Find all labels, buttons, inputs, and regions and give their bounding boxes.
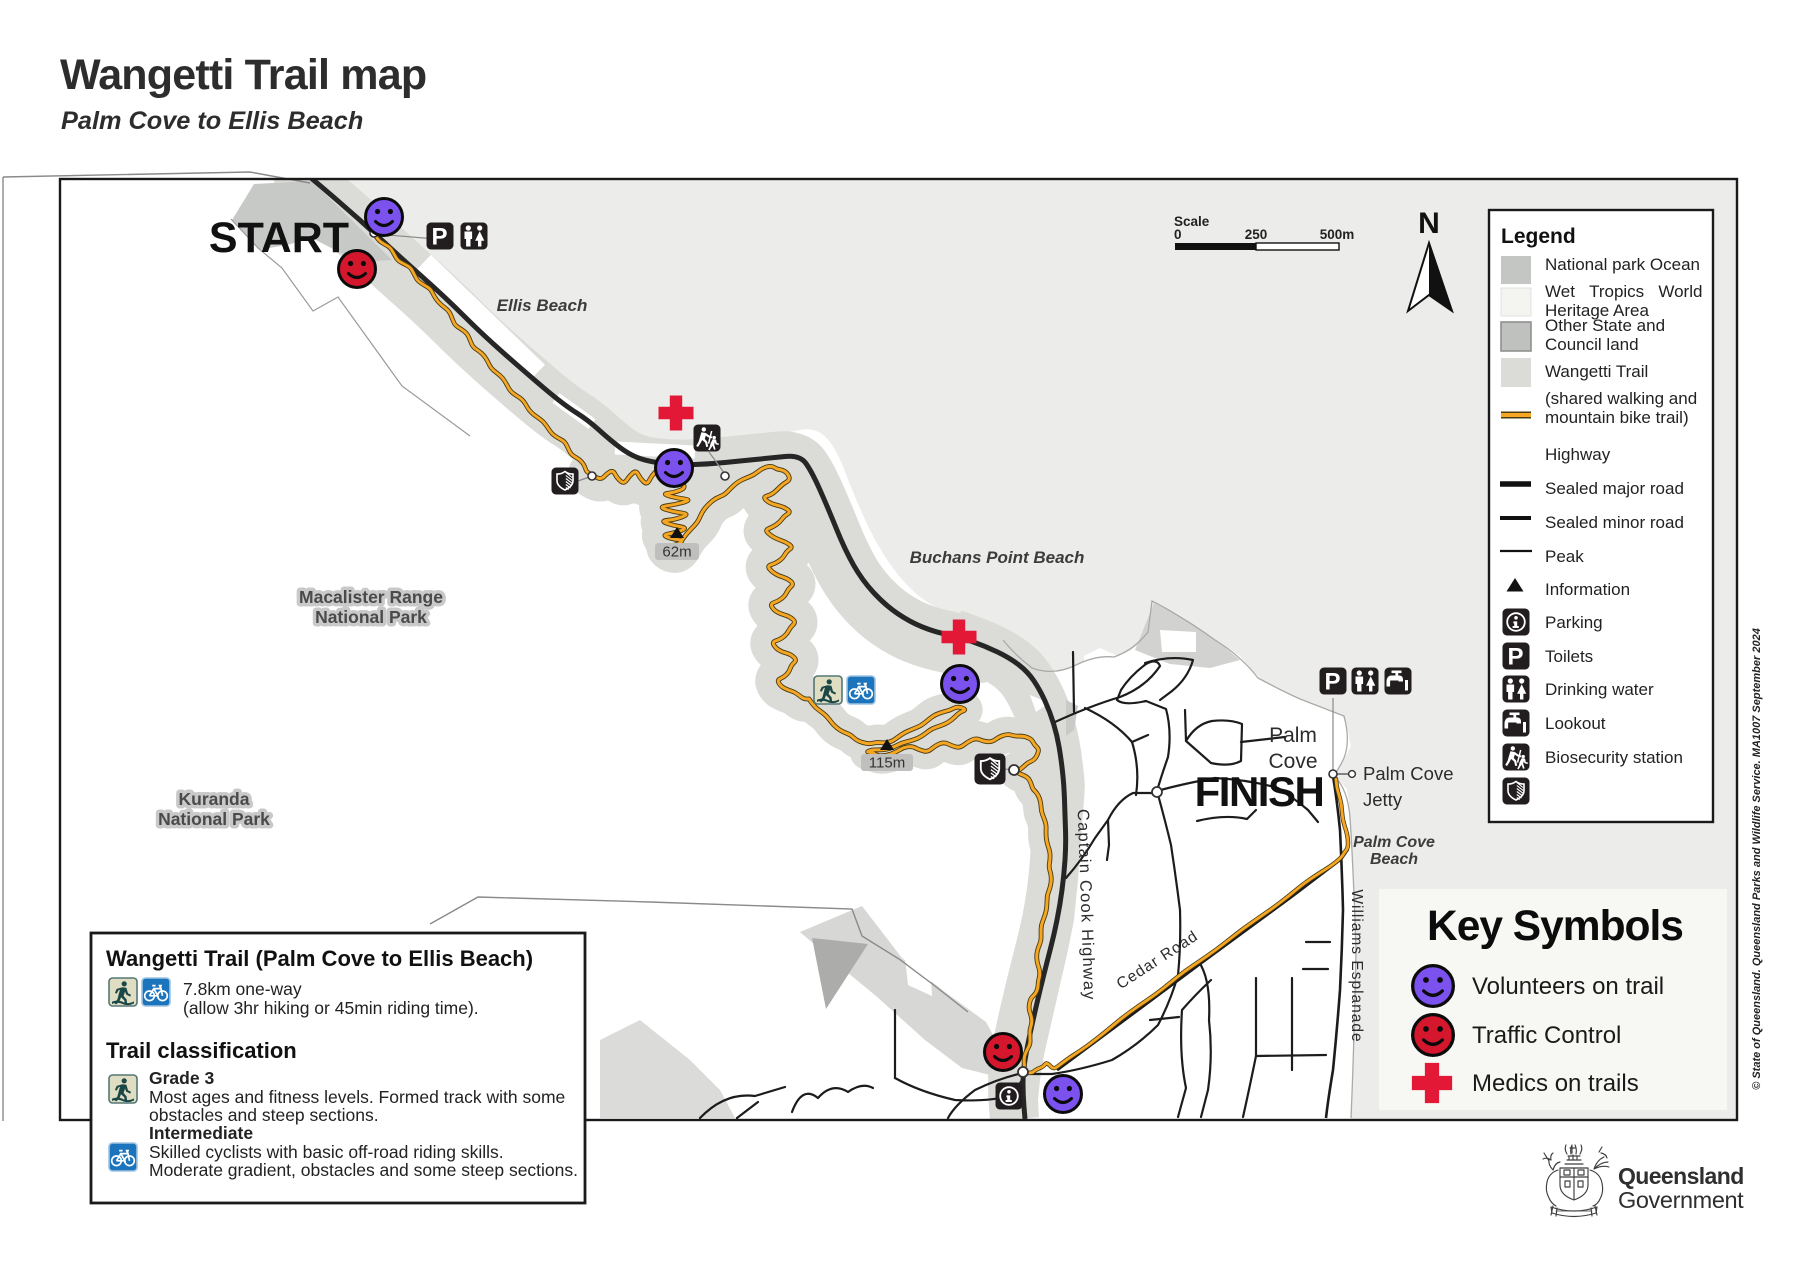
svg-text:Ellis Beach: Ellis Beach	[497, 296, 588, 315]
svg-text:Palm Cove: Palm Cove	[1353, 834, 1435, 851]
svg-text:© State of Queensland. Queensl: © State of Queensland. Queensland Parks …	[1751, 628, 1763, 1090]
svg-text:Skilled cyclists with basic of: Skilled cyclists with basic off-road rid…	[149, 1142, 504, 1162]
svg-text:(allow 3hr hiking or 45min rid: (allow 3hr hiking or 45min riding time).	[183, 998, 479, 1018]
svg-text:Wangetti Trail (Palm Cove to E: Wangetti Trail (Palm Cove to Ellis Beach…	[106, 946, 533, 971]
svg-text:Biosecurity station: Biosecurity station	[1545, 748, 1683, 767]
svg-text:Highway: Highway	[1545, 445, 1611, 464]
svg-text:Macalister Range: Macalister Range	[299, 587, 443, 607]
svg-text:Peak: Peak	[1545, 547, 1584, 566]
svg-text:Wet Tropics World: Wet Tropics World	[1545, 282, 1702, 301]
svg-text:Palm Cove to Ellis Beach: Palm Cove to Ellis Beach	[61, 107, 363, 135]
svg-text:Drinking water: Drinking water	[1545, 680, 1654, 699]
svg-text:Buchans Point Beach: Buchans Point Beach	[910, 548, 1085, 567]
svg-text:0: 0	[1174, 227, 1182, 242]
svg-text:Traffic Control: Traffic Control	[1472, 1022, 1621, 1049]
svg-text:Wangetti Trail: Wangetti Trail	[1545, 362, 1648, 381]
svg-text:Sealed major road: Sealed major road	[1545, 479, 1684, 498]
svg-text:Volunteers on trail: Volunteers on trail	[1472, 973, 1664, 1000]
svg-text:obstacles and steep sections.: obstacles and steep sections.	[149, 1105, 379, 1125]
svg-text:Lookout: Lookout	[1545, 714, 1606, 733]
svg-text:N: N	[1418, 207, 1440, 240]
svg-text:Trail classification: Trail classification	[106, 1038, 297, 1063]
svg-text:7.8km one-way: 7.8km one-way	[183, 979, 302, 999]
svg-text:Key Symbols: Key Symbols	[1427, 903, 1683, 950]
svg-text:Council land: Council land	[1545, 335, 1639, 354]
svg-text:Kuranda: Kuranda	[179, 789, 250, 809]
svg-text:National Park: National Park	[315, 607, 427, 627]
svg-text:FINISH: FINISH	[1195, 768, 1324, 815]
svg-text:Toilets: Toilets	[1545, 647, 1593, 666]
svg-text:Moderate gradient, obstacles a: Moderate gradient, obstacles and some st…	[149, 1160, 578, 1180]
svg-text:Intermediate: Intermediate	[149, 1123, 253, 1143]
svg-text:START: START	[209, 214, 349, 262]
svg-text:Wangetti Trail map: Wangetti Trail map	[60, 51, 426, 99]
svg-text:Williams Esplanade: Williams Esplanade	[1348, 889, 1365, 1042]
svg-text:Sealed minor road: Sealed minor road	[1545, 513, 1684, 532]
svg-text:Queensland: Queensland	[1618, 1163, 1744, 1189]
svg-text:National Park: National Park	[158, 809, 270, 829]
svg-text:Medics on trails: Medics on trails	[1472, 1070, 1639, 1097]
svg-text:Palm: Palm	[1269, 724, 1317, 747]
svg-text:500m: 500m	[1320, 227, 1355, 242]
svg-text:Most ages and fitness levels.: Most ages and fitness levels. Formed tra…	[149, 1087, 565, 1107]
svg-text:Other State and: Other State and	[1545, 316, 1665, 335]
svg-text:62m: 62m	[662, 544, 691, 561]
svg-text:Palm Cove: Palm Cove	[1363, 763, 1453, 784]
svg-text:mountain bike trail): mountain bike trail)	[1545, 408, 1689, 427]
svg-text:Grade 3: Grade 3	[149, 1068, 214, 1088]
svg-text:250: 250	[1245, 227, 1268, 242]
svg-text:Information: Information	[1545, 580, 1630, 599]
svg-text:Jetty: Jetty	[1363, 789, 1403, 810]
svg-text:115m: 115m	[869, 755, 905, 772]
svg-text:Parking: Parking	[1545, 613, 1603, 632]
svg-text:Beach: Beach	[1370, 851, 1418, 868]
svg-text:Legend: Legend	[1501, 225, 1576, 248]
svg-text:National park Ocean: National park Ocean	[1545, 255, 1700, 274]
svg-text:Government: Government	[1618, 1187, 1744, 1213]
svg-text:(shared walking and: (shared walking and	[1545, 389, 1697, 408]
svg-text:Cove: Cove	[1268, 750, 1317, 773]
